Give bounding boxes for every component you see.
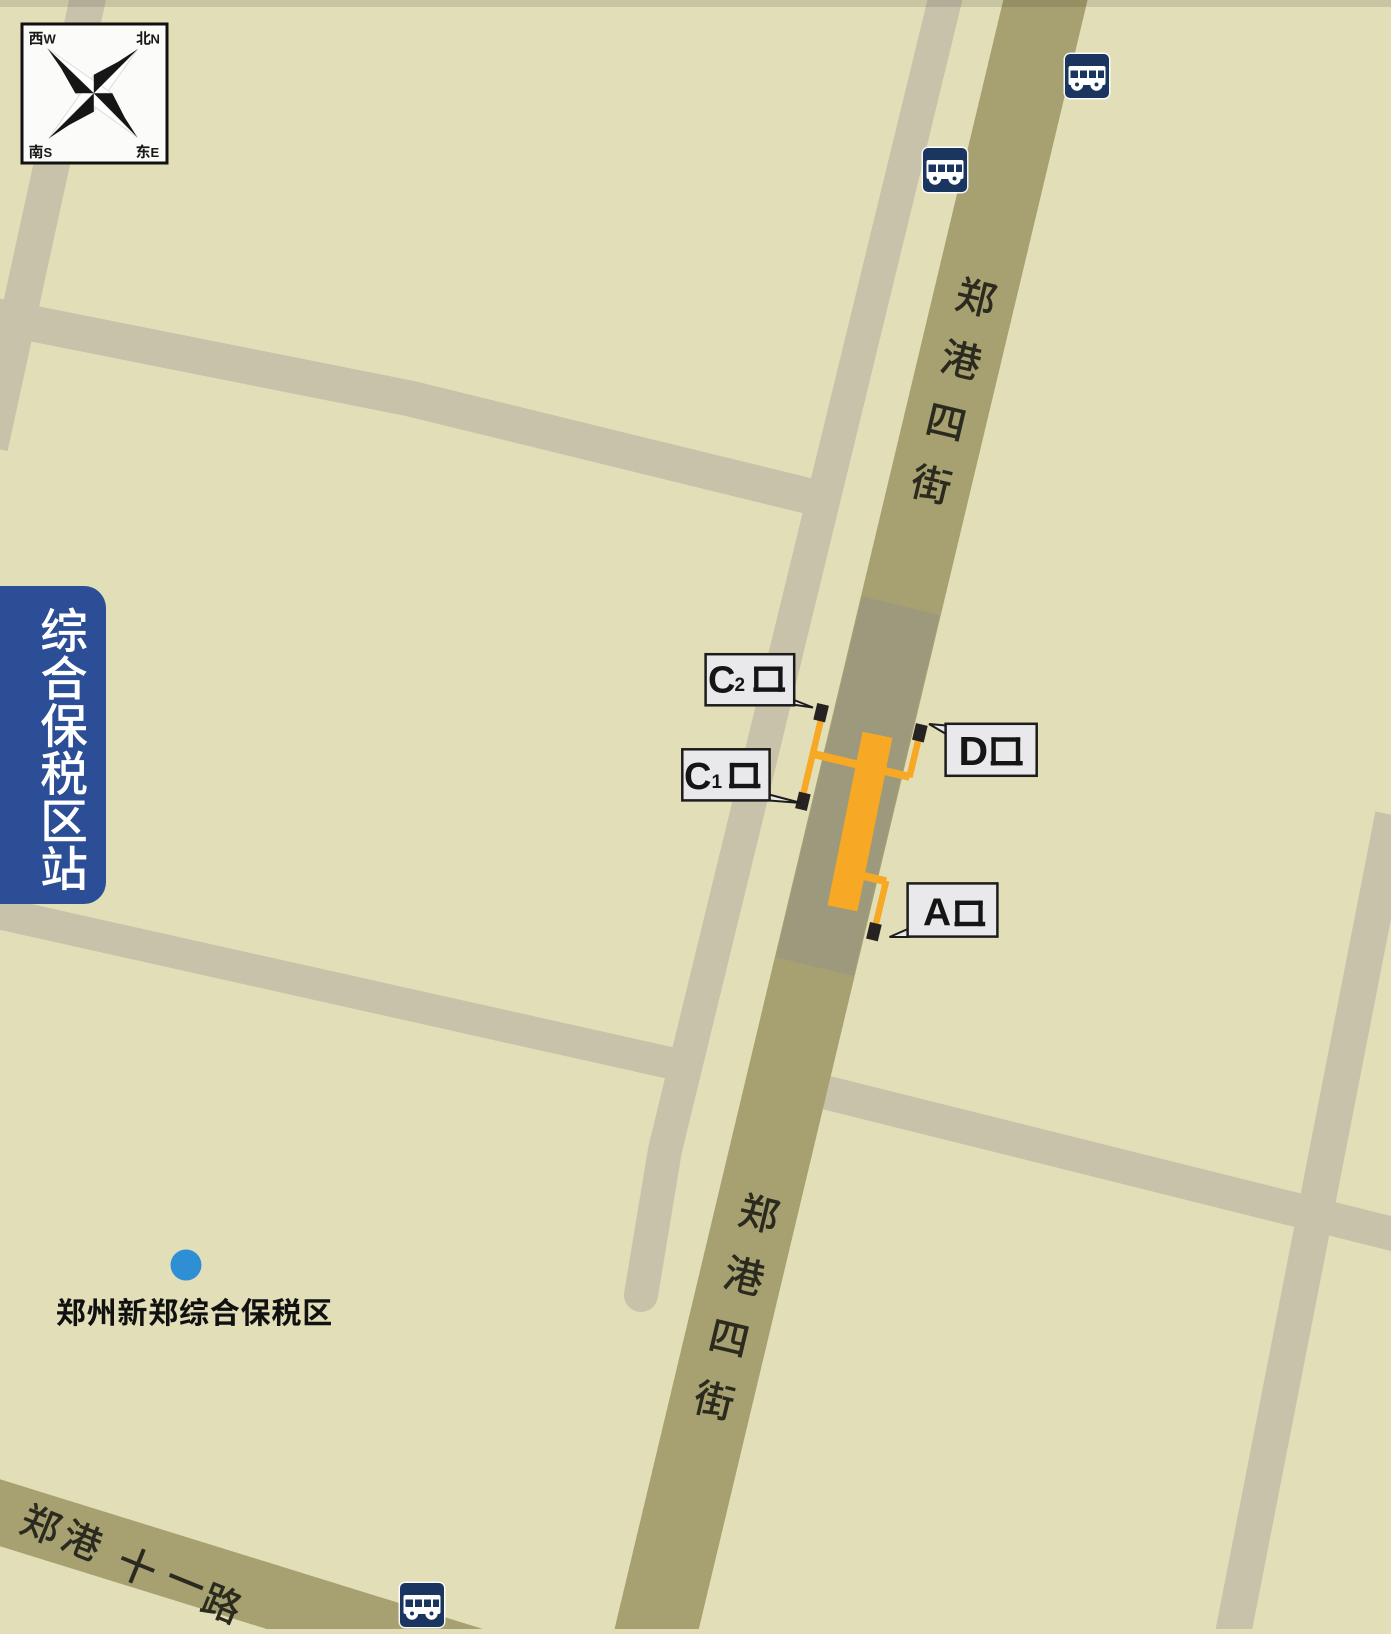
svg-text:C: C [684, 756, 711, 798]
svg-text:E: E [151, 145, 160, 160]
svg-text:A: A [923, 892, 951, 935]
svg-text:W: W [44, 32, 57, 47]
svg-text:S: S [44, 145, 53, 160]
svg-text:2: 2 [735, 675, 746, 696]
svg-text:C: C [708, 659, 735, 701]
svg-text:D: D [959, 728, 989, 774]
svg-text:1: 1 [712, 772, 723, 793]
svg-text:N: N [151, 32, 160, 47]
